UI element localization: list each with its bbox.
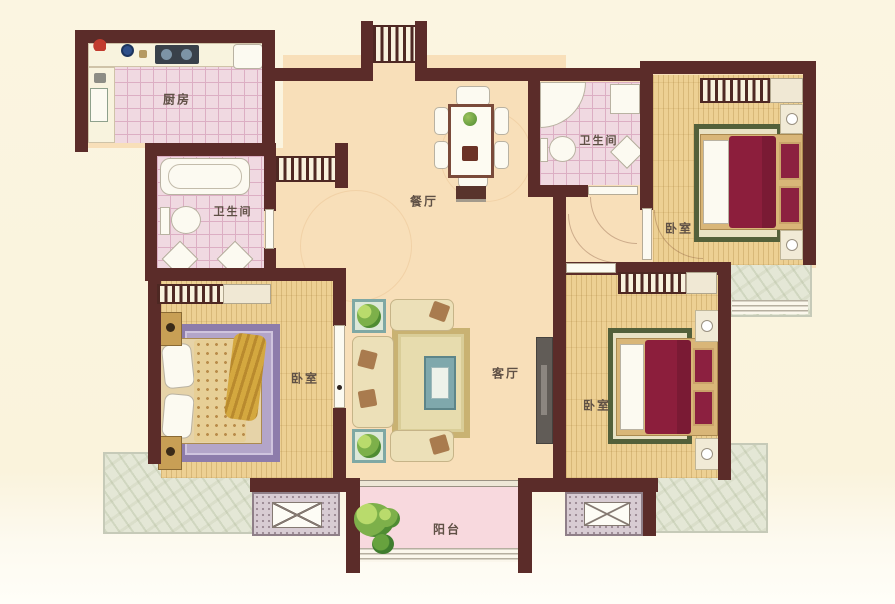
door-bedroom3	[566, 263, 616, 273]
sofa-main	[352, 336, 394, 428]
room-label-bathroom2: 卫生间	[580, 132, 619, 148]
wardrobe-bedroom3	[618, 272, 686, 294]
plant-icon	[357, 434, 381, 458]
wall	[640, 70, 653, 210]
bed-pillow	[161, 343, 195, 390]
bed-pillow	[779, 186, 801, 224]
coffee-table-top	[431, 367, 449, 399]
plant-icon	[357, 304, 381, 328]
bed-duvet	[729, 136, 776, 228]
bed-pillow	[161, 393, 195, 439]
kettle-icon	[91, 38, 106, 51]
wall	[518, 478, 532, 573]
room-label-living: 客厅	[492, 365, 520, 382]
room-label-bathroom1: 卫生间	[214, 203, 253, 219]
nightstand	[780, 230, 803, 260]
wall	[528, 185, 588, 197]
wall	[415, 21, 427, 68]
door-bedroom1	[642, 208, 652, 260]
lamp-icon	[786, 113, 798, 125]
cabinet-bedroom3	[686, 272, 717, 294]
wall	[262, 68, 373, 81]
lamp-icon	[701, 448, 713, 460]
wardrobe-bedroom2	[157, 284, 223, 304]
room-label-bedroom3: 卧室	[583, 397, 611, 414]
dining-chair	[494, 107, 509, 135]
cabinet-bedroom2	[223, 284, 271, 304]
kitchen-sink	[233, 44, 263, 69]
balcony-plant-large-2	[378, 508, 400, 528]
small-appliance	[94, 73, 106, 83]
wall	[361, 21, 373, 68]
hall-window-icon	[276, 156, 335, 182]
nightstand	[780, 104, 803, 134]
nightstand	[695, 310, 719, 342]
fridge	[90, 88, 108, 122]
washing-machine	[610, 84, 640, 114]
dining-chair	[434, 107, 449, 135]
toilet-bowl	[171, 206, 201, 234]
wall	[148, 281, 161, 464]
wall	[145, 143, 157, 272]
floor-plan: 厨房 卫生间 餐厅 卫生间 卧室 卧室 客厅 卧室 阳台	[0, 0, 895, 604]
room-label-dining: 餐厅	[410, 193, 438, 210]
balcony-sliding-door	[360, 480, 518, 487]
door-knob	[337, 385, 342, 390]
wall	[262, 30, 275, 146]
sofa-pillow	[358, 389, 378, 409]
tv-screen	[541, 365, 547, 415]
wall	[264, 143, 276, 211]
bay-window-sill	[732, 300, 808, 314]
table-bowl	[462, 146, 478, 161]
nightstand-lamp-icon	[166, 323, 175, 332]
dining-chair	[456, 86, 490, 106]
bay-window-icon	[373, 25, 415, 63]
wardrobe-bedroom1	[700, 78, 770, 103]
cooktop-burner	[161, 49, 172, 60]
jar-icon	[139, 50, 147, 58]
room-label-kitchen: 厨房	[163, 91, 191, 108]
wall	[803, 61, 816, 265]
sideboard	[456, 186, 486, 202]
wall	[553, 262, 566, 492]
bed-pillow	[693, 348, 714, 384]
wall	[333, 268, 346, 326]
wall	[553, 197, 566, 272]
cooktop-burner	[181, 49, 192, 60]
toilet-tank	[160, 207, 170, 235]
ac-unit-box-right	[584, 502, 630, 526]
bathtub-basin	[168, 164, 242, 189]
wall	[528, 70, 540, 197]
ac-unit-box-left	[272, 502, 322, 528]
dining-chair	[494, 141, 509, 169]
bed-duvet	[645, 340, 691, 434]
door-bedroom2	[334, 325, 345, 408]
room-label-bedroom2: 卧室	[291, 370, 319, 387]
dining-chair	[434, 141, 449, 169]
wall	[643, 478, 656, 536]
wall	[75, 30, 88, 152]
cabinet-bedroom1	[770, 78, 803, 103]
wall	[718, 262, 731, 480]
room-label-balcony: 阳台	[433, 521, 461, 538]
balcony-plant-small	[372, 534, 394, 554]
toilet-tank	[540, 138, 548, 162]
wall	[250, 478, 360, 492]
nightstand-lamp-icon	[166, 447, 175, 456]
nightstand	[695, 438, 719, 470]
bed-pillow	[693, 390, 714, 426]
wall	[640, 61, 816, 74]
wall	[145, 268, 346, 281]
wall	[335, 143, 348, 188]
wall	[145, 143, 276, 156]
bed-pillow	[779, 142, 801, 180]
pot-icon	[121, 44, 134, 57]
bed-foot-mattress	[703, 140, 729, 224]
bed-foot-mattress	[620, 344, 644, 430]
lamp-icon	[701, 320, 713, 332]
room-label-bedroom1: 卧室	[665, 220, 693, 237]
table-plant	[463, 112, 477, 126]
door-bathroom1	[265, 209, 274, 249]
lamp-icon	[786, 239, 798, 251]
door-bathroom2	[588, 186, 638, 195]
toilet-bowl	[549, 136, 576, 162]
